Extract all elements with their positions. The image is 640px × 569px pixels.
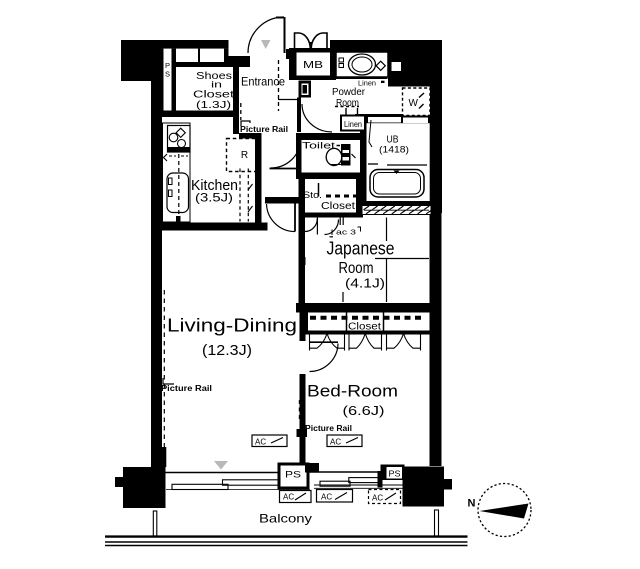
svg-text:ac 3: ac 3	[336, 228, 356, 237]
svg-text:(1.3J): (1.3J)	[196, 100, 231, 111]
svg-text:Linen: Linen	[358, 79, 376, 88]
svg-text:Linen: Linen	[344, 120, 362, 129]
svg-text:R: R	[241, 150, 248, 161]
svg-text:(3.5J): (3.5J)	[195, 191, 233, 205]
svg-text:(12.3J): (12.3J)	[202, 343, 252, 359]
svg-text:N: N	[468, 498, 476, 510]
svg-text:Bed-Room: Bed-Room	[307, 382, 398, 401]
svg-text:AC: AC	[283, 493, 294, 502]
svg-text:Room: Room	[336, 98, 359, 109]
svg-text:Picture Rail: Picture Rail	[305, 424, 352, 433]
svg-text:Picture Rail: Picture Rail	[240, 125, 288, 134]
svg-text:(4.1J): (4.1J)	[345, 276, 385, 291]
svg-text:Balcony: Balcony	[259, 512, 312, 526]
svg-text:AC: AC	[372, 494, 383, 503]
svg-text:AC: AC	[330, 438, 341, 447]
svg-text:Powder: Powder	[332, 87, 366, 98]
svg-text:Closet: Closet	[348, 322, 381, 333]
svg-text:Closet: Closet	[321, 201, 355, 212]
svg-text:MB: MB	[303, 60, 323, 71]
svg-text:AC: AC	[255, 438, 266, 447]
svg-text:W: W	[409, 98, 419, 109]
svg-text:Closet: Closet	[193, 90, 234, 101]
svg-text:(1418): (1418)	[379, 145, 409, 155]
svg-text:(6.6J): (6.6J)	[343, 403, 385, 418]
svg-text:Japanese: Japanese	[327, 239, 395, 259]
svg-text:Living-Dining: Living-Dining	[167, 316, 297, 336]
svg-text:AC: AC	[321, 493, 332, 502]
svg-text:PS: PS	[285, 470, 301, 480]
svg-text:PS: PS	[389, 469, 401, 479]
svg-text:Picture Rail: Picture Rail	[161, 384, 212, 393]
svg-text:S: S	[165, 70, 170, 79]
svg-text:Room: Room	[339, 260, 374, 277]
